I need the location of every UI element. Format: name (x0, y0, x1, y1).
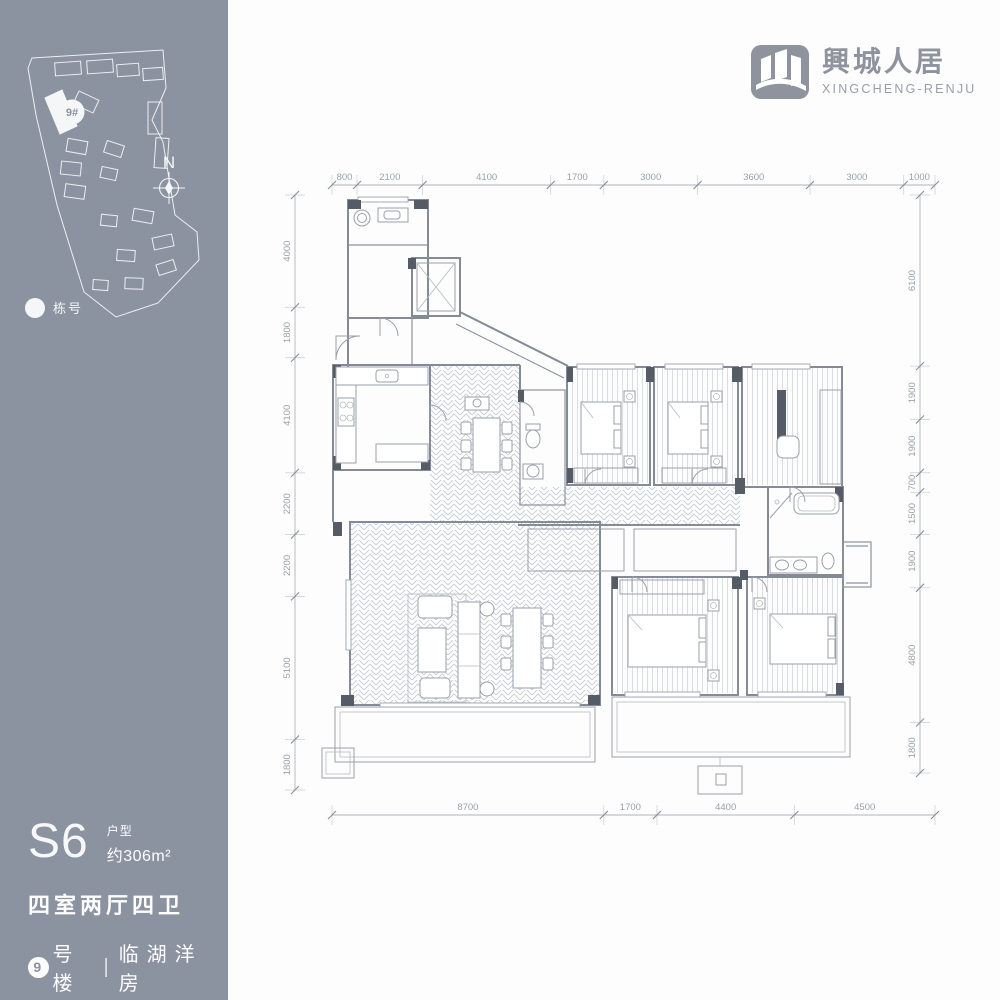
svg-text:3000: 3000 (846, 172, 867, 183)
unit-code: S6 (28, 818, 89, 866)
logo: 興城人居 XINGCHENG-RENJU (750, 44, 977, 100)
svg-text:1900: 1900 (907, 382, 918, 403)
svg-text:1900: 1900 (907, 551, 918, 572)
site-plan: 9# N 栋号 (5, 40, 220, 330)
unit-layout: 四室两厅四卫 (0, 888, 228, 920)
svg-text:1800: 1800 (282, 322, 293, 343)
site-legend-label: 栋号 (53, 301, 83, 316)
side-panel: 9# N 栋号 S6 户型 约306m² 四室两厅四卫 (0, 0, 228, 1000)
north-label: N (163, 153, 175, 172)
svg-text:3600: 3600 (743, 172, 764, 183)
north-compass: N (153, 153, 185, 204)
floor-plan: 8002100410017003000360030001000 87001700… (280, 150, 964, 840)
logo-title: 興城人居 (822, 48, 977, 76)
svg-text:6100: 6100 (907, 270, 918, 291)
svg-text:4000: 4000 (282, 241, 293, 262)
building-number-badge: 9 (28, 957, 49, 978)
unit-location: 9 号楼 | 临湖洋房 (0, 938, 228, 996)
dimension-right: 6100190019007001500190048001800 (907, 191, 930, 777)
dimension-left: 4000180041002200220051001800 (282, 191, 305, 794)
svg-text:1800: 1800 (282, 754, 293, 775)
dimension-top: 8002100410017003000360030001000 (328, 172, 939, 195)
svg-text:5100: 5100 (282, 657, 293, 678)
page: 9# N 栋号 S6 户型 约306m² 四室两厅四卫 (0, 0, 1000, 1000)
dimension-bottom: 8700170044004500 (328, 802, 939, 825)
svg-text:2100: 2100 (379, 172, 400, 183)
svg-text:4400: 4400 (715, 802, 736, 813)
location-name: 临湖洋房 (119, 938, 228, 996)
unit-area: 约306m² (107, 842, 171, 866)
svg-text:4800: 4800 (907, 645, 918, 666)
site-building-9-label: 9# (66, 107, 78, 119)
svg-text:2200: 2200 (282, 555, 293, 576)
building-label: 号楼 (53, 938, 96, 996)
svg-text:2200: 2200 (282, 493, 293, 514)
svg-text:1700: 1700 (567, 172, 588, 183)
svg-text:1800: 1800 (907, 737, 918, 758)
svg-text:4100: 4100 (282, 405, 293, 426)
svg-text:1900: 1900 (907, 436, 918, 457)
logo-icon (750, 44, 810, 100)
svg-text:1700: 1700 (620, 802, 641, 813)
balconies (322, 697, 850, 794)
svg-text:800: 800 (337, 172, 353, 183)
location-divider: | (103, 956, 110, 979)
svg-text:8700: 8700 (457, 802, 478, 813)
site-legend: 栋号 (25, 298, 83, 318)
svg-text:700: 700 (907, 475, 918, 491)
svg-text:3000: 3000 (640, 172, 661, 183)
svg-text:4100: 4100 (476, 172, 497, 183)
svg-text:4500: 4500 (854, 802, 875, 813)
site-boundary (28, 50, 199, 317)
logo-subtitle: XINGCHENG-RENJU (822, 82, 977, 96)
svg-text:1000: 1000 (909, 172, 930, 183)
unit-info: S6 户型 约306m² 四室两厅四卫 9 号楼 | 临湖洋房 (0, 818, 228, 996)
unit-type-label: 户型 (107, 822, 171, 839)
svg-text:1500: 1500 (907, 503, 918, 524)
